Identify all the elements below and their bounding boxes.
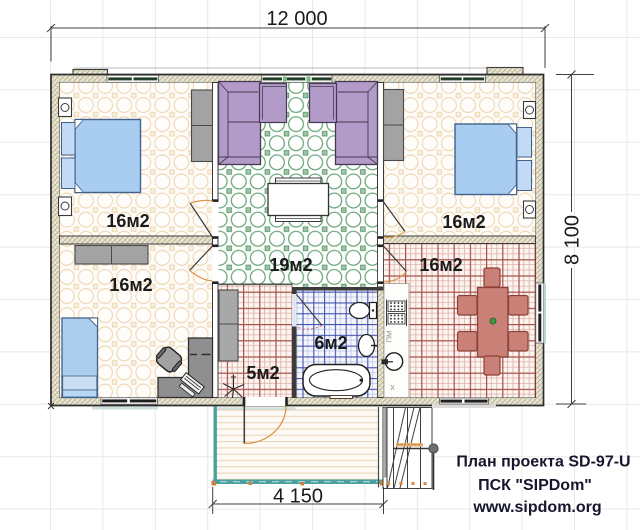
svg-text:x: x <box>390 382 395 392</box>
svg-text:16м2: 16м2 <box>109 275 152 295</box>
svg-text:8 100: 8 100 <box>562 215 584 265</box>
svg-text:16м2: 16м2 <box>442 212 485 232</box>
svg-text:www.sipdom.org: www.sipdom.org <box>472 499 601 516</box>
svg-text:16м2: 16м2 <box>419 255 462 275</box>
svg-text:ПСК "SIPDom": ПСК "SIPDom" <box>478 477 592 494</box>
svg-text:12 000: 12 000 <box>266 8 327 30</box>
svg-text:16м2: 16м2 <box>106 211 149 231</box>
svg-text:ПМ: ПМ <box>385 331 394 343</box>
svg-text:6м2: 6м2 <box>314 333 347 353</box>
svg-text:4 150: 4 150 <box>273 486 323 508</box>
svg-text:19м2: 19м2 <box>269 255 312 275</box>
svg-text:План проекта SD-97-U: План проекта SD-97-U <box>456 454 630 471</box>
svg-text:5м2: 5м2 <box>246 363 279 383</box>
